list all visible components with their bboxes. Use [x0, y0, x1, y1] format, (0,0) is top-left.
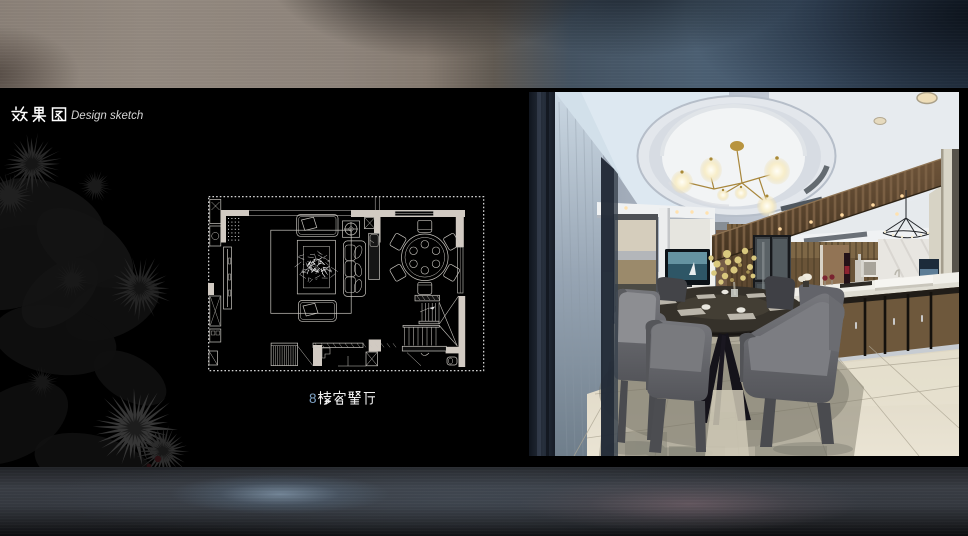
svg-text:8: 8 [309, 391, 317, 406]
